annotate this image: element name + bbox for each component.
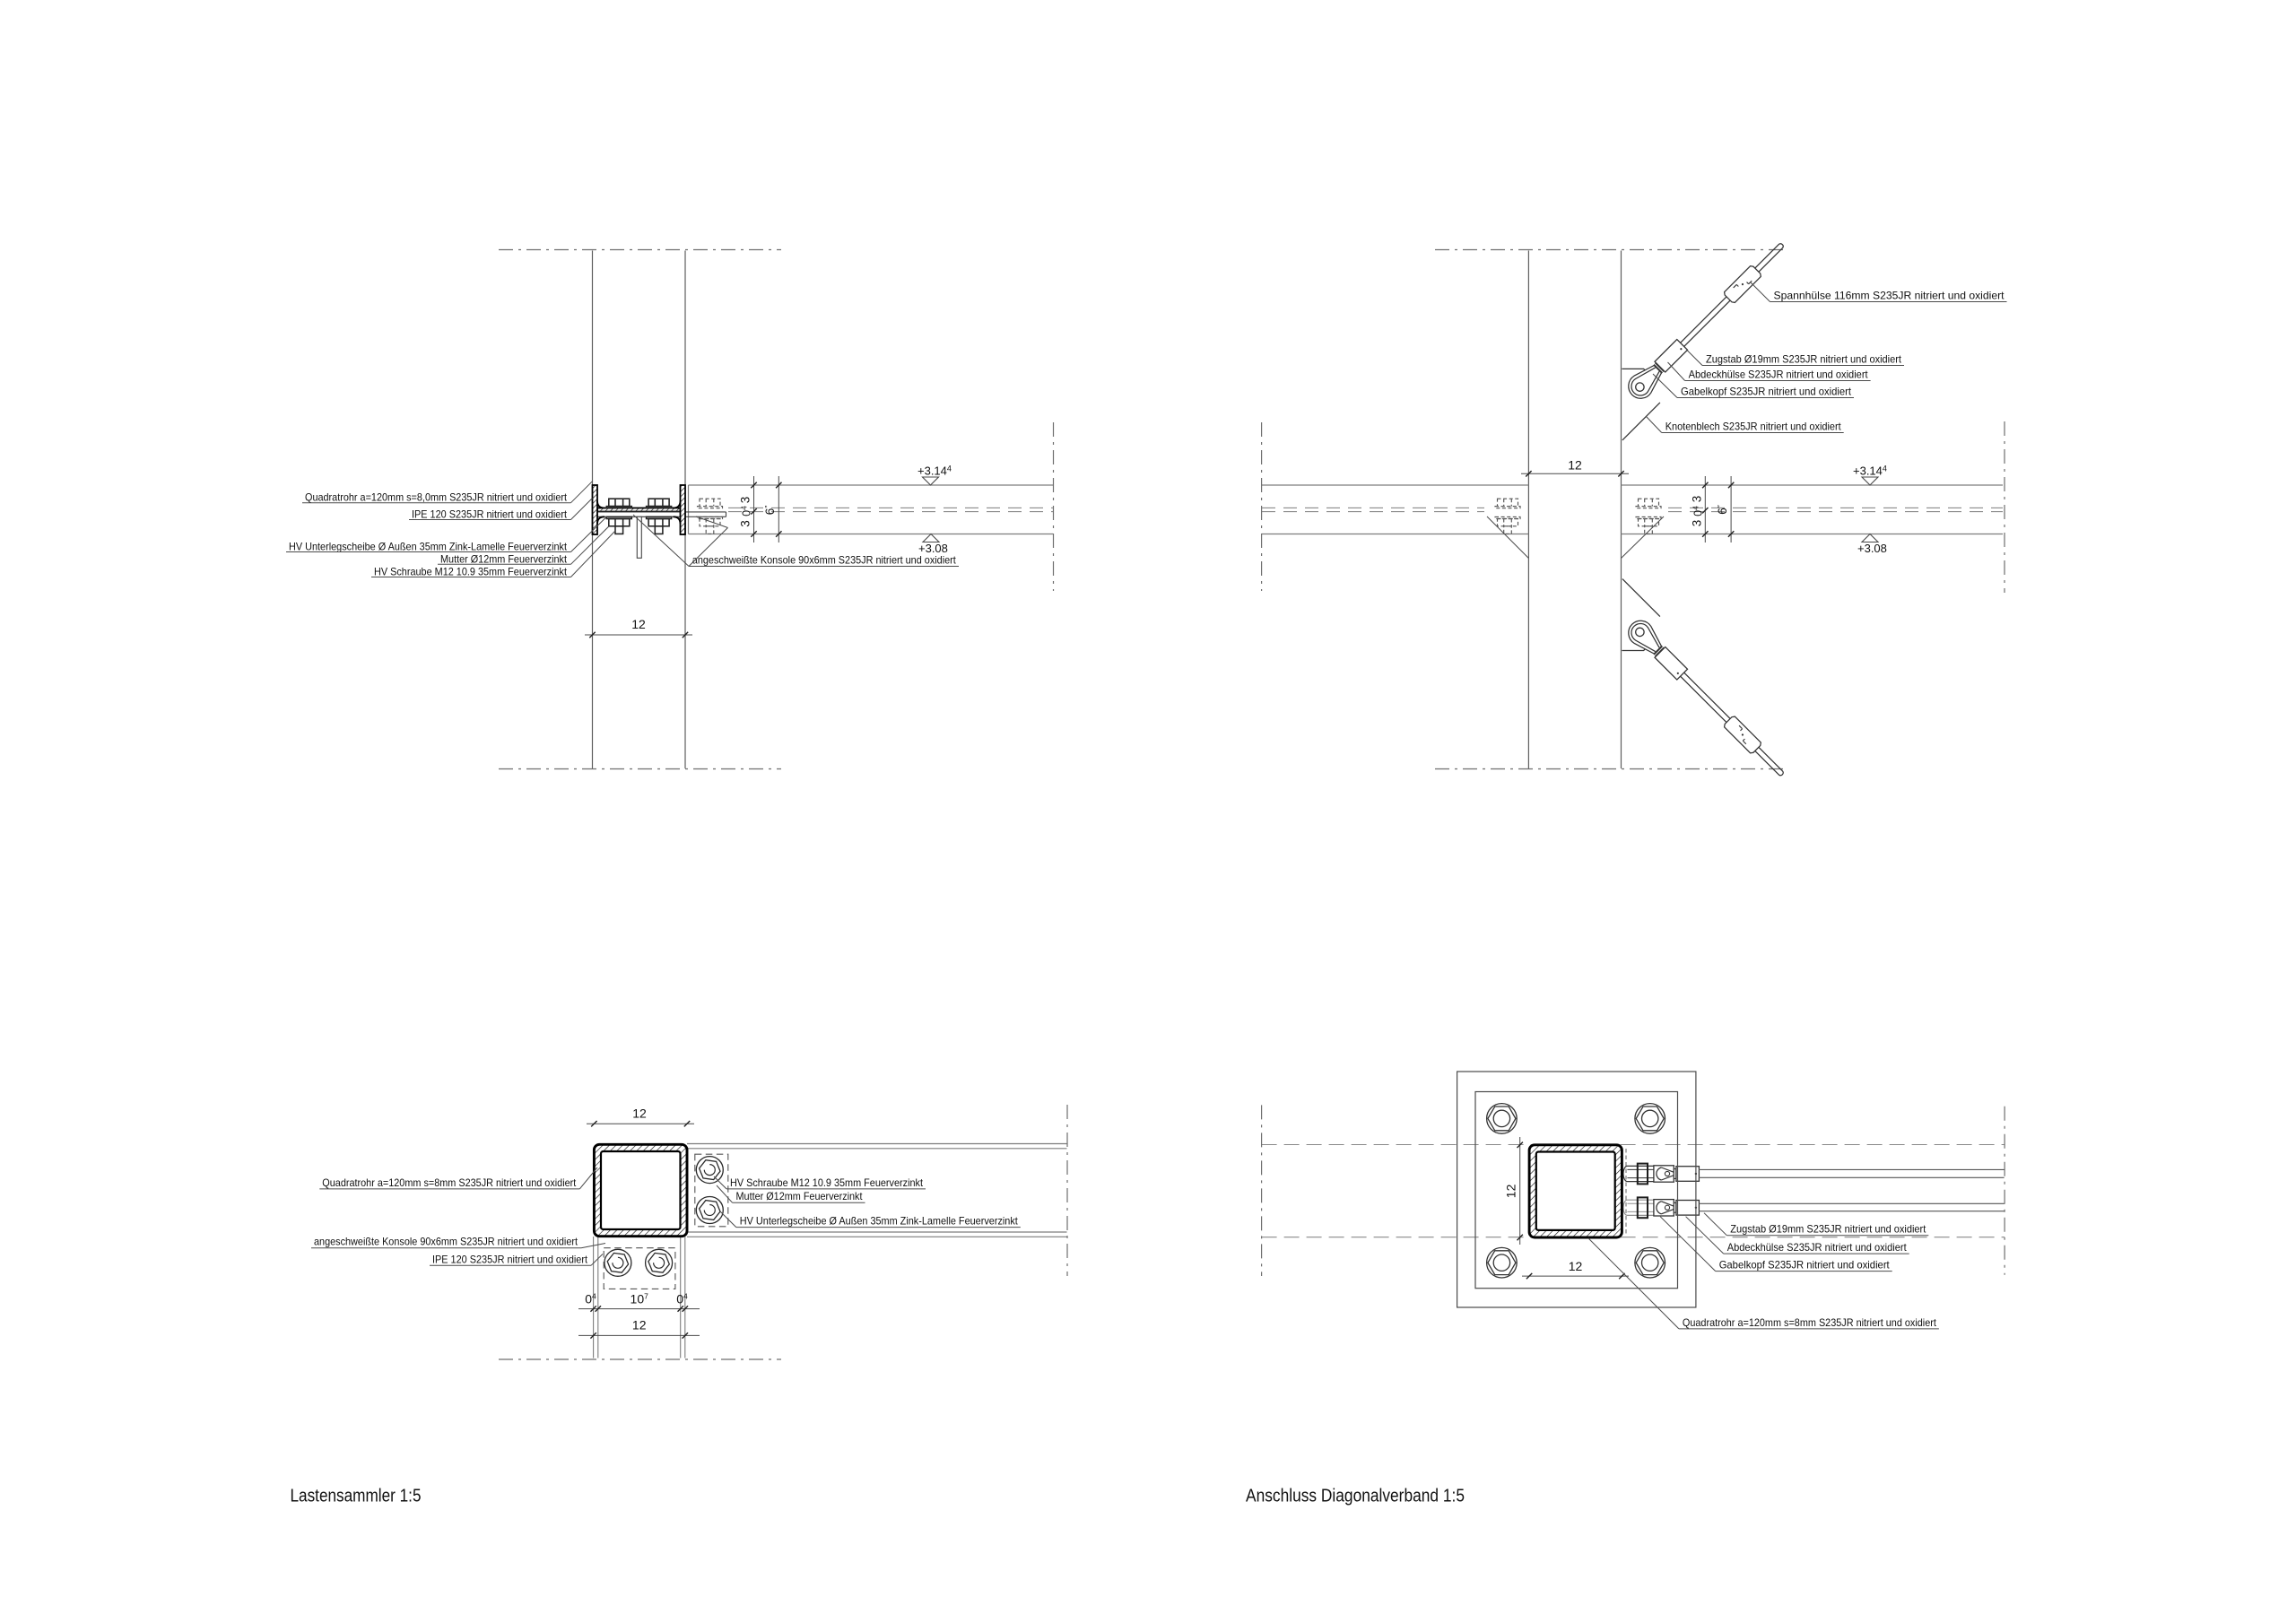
svg-text:3: 3 xyxy=(1690,520,1703,527)
svg-text:Gabelkopf S235JR nitriert und: Gabelkopf S235JR nitriert und oxidiert xyxy=(1681,386,1852,398)
svg-text:IPE 120 S235JR nitriert und ox: IPE 120 S235JR nitriert und oxidiert xyxy=(412,508,568,520)
svg-text:12: 12 xyxy=(1569,1259,1583,1273)
svg-text:Lastensammler 1:5: Lastensammler 1:5 xyxy=(291,1487,422,1506)
svg-text:Mutter Ø12mm Feuerverzinkt: Mutter Ø12mm Feuerverzinkt xyxy=(736,1190,864,1202)
svg-text:+3.08: +3.08 xyxy=(1857,542,1887,555)
svg-text:IPE 120 S235JR nitriert und ox: IPE 120 S235JR nitriert und oxidiert xyxy=(432,1253,588,1265)
svg-text:12: 12 xyxy=(1504,1184,1518,1198)
svg-text:Quadratrohr a=120mm s=8mm S235: Quadratrohr a=120mm s=8mm S235JR nitrier… xyxy=(1683,1316,1937,1329)
svg-text:Spannhülse 116mm S235JR nitrie: Spannhülse 116mm S235JR nitriert und oxi… xyxy=(1774,290,2005,302)
svg-text:Abdeckhülse S235JR nitriert un: Abdeckhülse S235JR nitriert und oxidiert xyxy=(1727,1241,1908,1254)
svg-text:angeschweißte Konsole 90x6mm S: angeschweißte Konsole 90x6mm S235JR nitr… xyxy=(692,554,957,567)
svg-text:12: 12 xyxy=(1568,458,1582,473)
svg-text:HV Schraube M12 10.9 35mm Feue: HV Schraube M12 10.9 35mm Feuerverzinkt xyxy=(730,1176,924,1189)
svg-text:Quadratrohr a=120mm s=8mm S235: Quadratrohr a=120mm s=8mm S235JR nitrier… xyxy=(322,1176,577,1189)
svg-text:Zugstab Ø19mm S235JR nitriert: Zugstab Ø19mm S235JR nitriert und oxidie… xyxy=(1730,1223,1926,1236)
svg-text:3: 3 xyxy=(739,497,752,504)
svg-text:Zugstab Ø19mm S235JR nitriert: Zugstab Ø19mm S235JR nitriert und oxidie… xyxy=(1706,353,1902,366)
svg-text:12: 12 xyxy=(631,617,646,631)
svg-text:3: 3 xyxy=(739,520,752,527)
svg-text:+3.144: +3.144 xyxy=(1853,464,1887,478)
svg-text:Knotenblech S235JR nitriert un: Knotenblech S235JR nitriert und oxidiert xyxy=(1665,421,1842,433)
svg-text:Quadratrohr a=120mm s=8,0mm S2: Quadratrohr a=120mm s=8,0mm S235JR nitri… xyxy=(305,491,568,504)
svg-text:angeschweißte Konsole 90x6mm S: angeschweißte Konsole 90x6mm S235JR nitr… xyxy=(314,1236,578,1248)
svg-text:HV Schraube M12 10.9 35mm Feue: HV Schraube M12 10.9 35mm Feuerverzinkt xyxy=(374,566,568,578)
svg-text:3: 3 xyxy=(1690,496,1703,503)
svg-text:Gabelkopf S235JR nitriert und: Gabelkopf S235JR nitriert und oxidiert xyxy=(1719,1259,1891,1271)
svg-text:12: 12 xyxy=(632,1107,647,1121)
svg-text:+3.144: +3.144 xyxy=(918,464,952,478)
svg-text:Mutter Ø12mm Feuerverzinkt: Mutter Ø12mm Feuerverzinkt xyxy=(440,552,568,565)
svg-text:12: 12 xyxy=(632,1318,647,1332)
svg-text:HV Unterlegscheibe Ø Außen 35m: HV Unterlegscheibe Ø Außen 35mm Zink-Lam… xyxy=(289,541,568,553)
svg-text:Abdeckhülse S235JR nitriert un: Abdeckhülse S235JR nitriert und oxidiert xyxy=(1689,369,1869,381)
svg-text:HV Unterlegscheibe Ø Außen 35m: HV Unterlegscheibe Ø Außen 35mm Zink-Lam… xyxy=(740,1215,1019,1228)
svg-text:Anschluss Diagonalverband 1:5: Anschluss Diagonalverband 1:5 xyxy=(1246,1487,1465,1506)
